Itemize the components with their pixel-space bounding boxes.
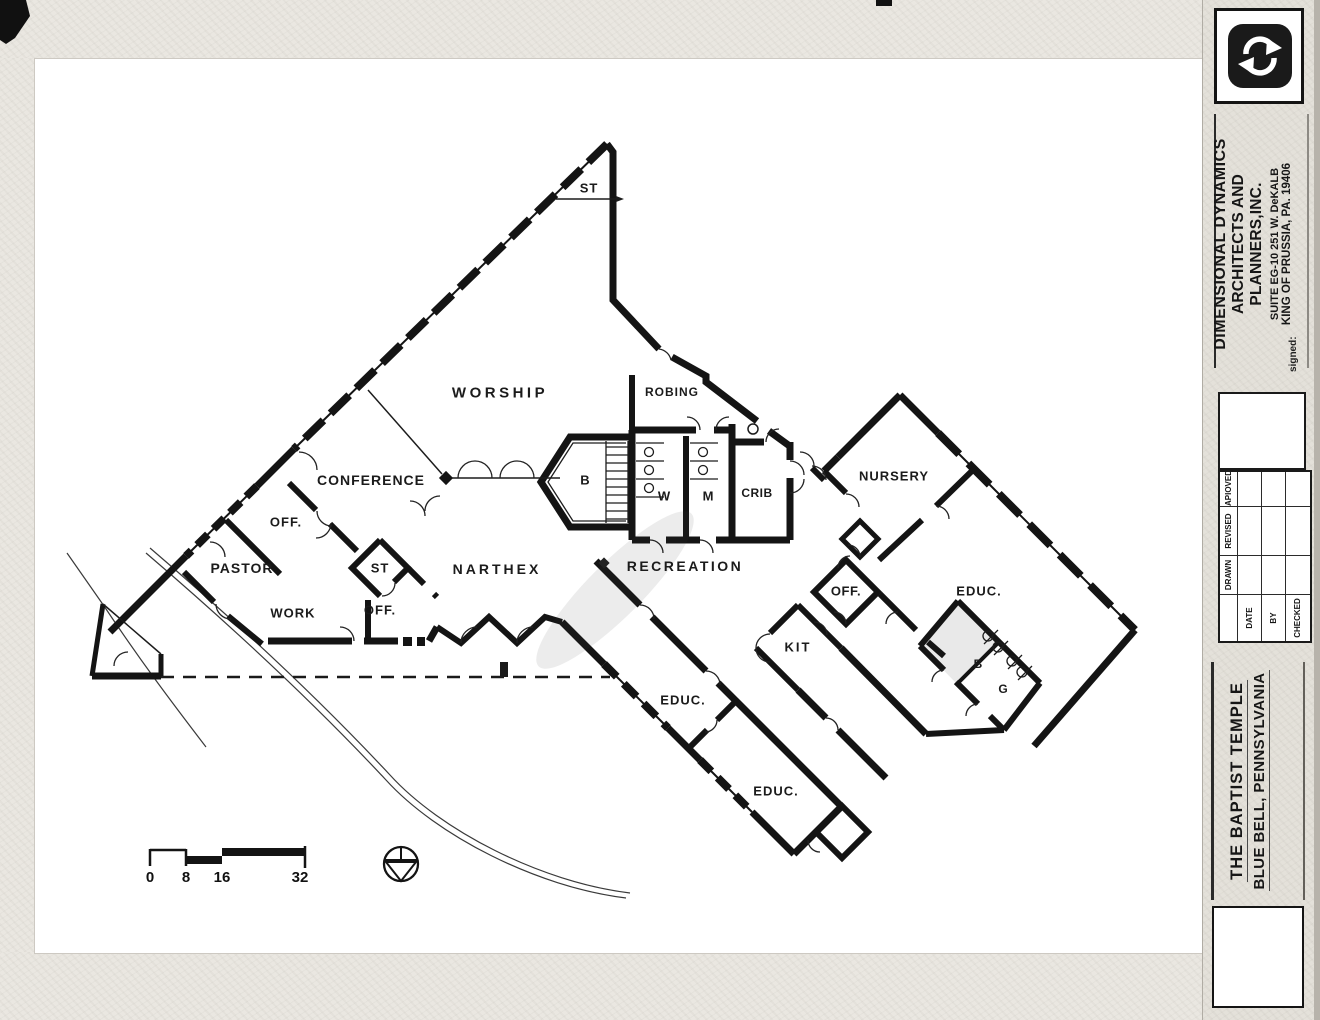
floor-plan-drawing — [0, 0, 1320, 1020]
room-label: WORK — [270, 606, 315, 621]
revision-row-checked: CHECKED — [1285, 595, 1311, 643]
room-label: CRIB — [741, 486, 772, 500]
bottom-empty-box — [1212, 906, 1304, 1008]
revision-row-date: DATE — [1237, 595, 1261, 643]
firm-name-line1: DIMENSIONAL DYNAMICS — [1212, 116, 1230, 372]
project-name: THE BAPTIST TEMPLE — [1228, 660, 1247, 902]
room-label: M — [703, 489, 714, 504]
revision-col-approved: APIOVED — [1219, 471, 1237, 507]
room-label: NURSERY — [859, 469, 929, 484]
scale-tick-label: 8 — [182, 869, 190, 886]
blueprint-sheet: STWORSHIPROBINGCONFERENCEOFF.PASTORWORKS… — [0, 0, 1320, 1020]
room-label: RECREATION — [627, 558, 744, 574]
firm-logo — [1214, 8, 1304, 104]
room-label: NARTHEX — [453, 561, 542, 577]
project-location: BLUE BELL, PENNSYLVANIA — [1251, 660, 1268, 902]
interlocking-arrows-icon — [1228, 24, 1292, 88]
room-label: EDUC. — [753, 784, 798, 799]
room-label: EDUC. — [660, 693, 705, 708]
sheet-right-edge — [1314, 0, 1320, 1020]
room-label: OFF. — [831, 584, 861, 599]
room-label: OFF. — [270, 515, 302, 530]
room-label: CONFERENCE — [317, 472, 425, 488]
revision-table: DRAWN REVISED APIOVED DATE BY CHECKED — [1218, 470, 1312, 643]
scale-tick-label: 16 — [214, 869, 231, 886]
room-label: W — [658, 489, 670, 504]
revision-col-revised: REVISED — [1219, 507, 1237, 556]
room-label: B — [974, 657, 983, 671]
firm-address-line1: SUITE EG-10 251 W. DeKALB — [1269, 116, 1281, 372]
room-label: KIT — [785, 640, 812, 655]
room-label: ROBING — [645, 385, 699, 399]
scale-bar — [150, 846, 305, 868]
shading — [439, 471, 999, 686]
walls — [92, 144, 1135, 858]
revision-row-by: BY — [1261, 595, 1285, 643]
scale-tick-label: 32 — [292, 869, 309, 886]
door-arcs — [114, 349, 978, 852]
driveway-curves — [67, 548, 630, 898]
room-label: EDUC. — [956, 584, 1001, 599]
scan-artifacts — [0, 0, 892, 44]
room-label: ST — [580, 181, 599, 196]
revision-empty-box — [1218, 392, 1306, 470]
room-label: ST — [371, 561, 390, 576]
room-label: B — [580, 473, 589, 488]
firm-name-line2: ARCHITECTS AND PLANNERS,INC. — [1230, 116, 1266, 372]
room-label: G — [998, 682, 1007, 696]
signed-label: signed: — [1288, 328, 1302, 372]
revision-block: DRAWN REVISED APIOVED DATE BY CHECKED — [1218, 392, 1310, 643]
scale-tick-label: 0 — [146, 869, 154, 886]
revision-col-drawn: DRAWN — [1219, 556, 1237, 595]
north-arrow-icon — [384, 847, 418, 881]
room-label: OFF. — [364, 603, 396, 618]
room-label: WORSHIP — [452, 385, 548, 402]
project-title-block: THE BAPTIST TEMPLE BLUE BELL, PENNSYLVAN… — [1206, 660, 1310, 902]
room-label: PASTOR — [210, 560, 273, 576]
